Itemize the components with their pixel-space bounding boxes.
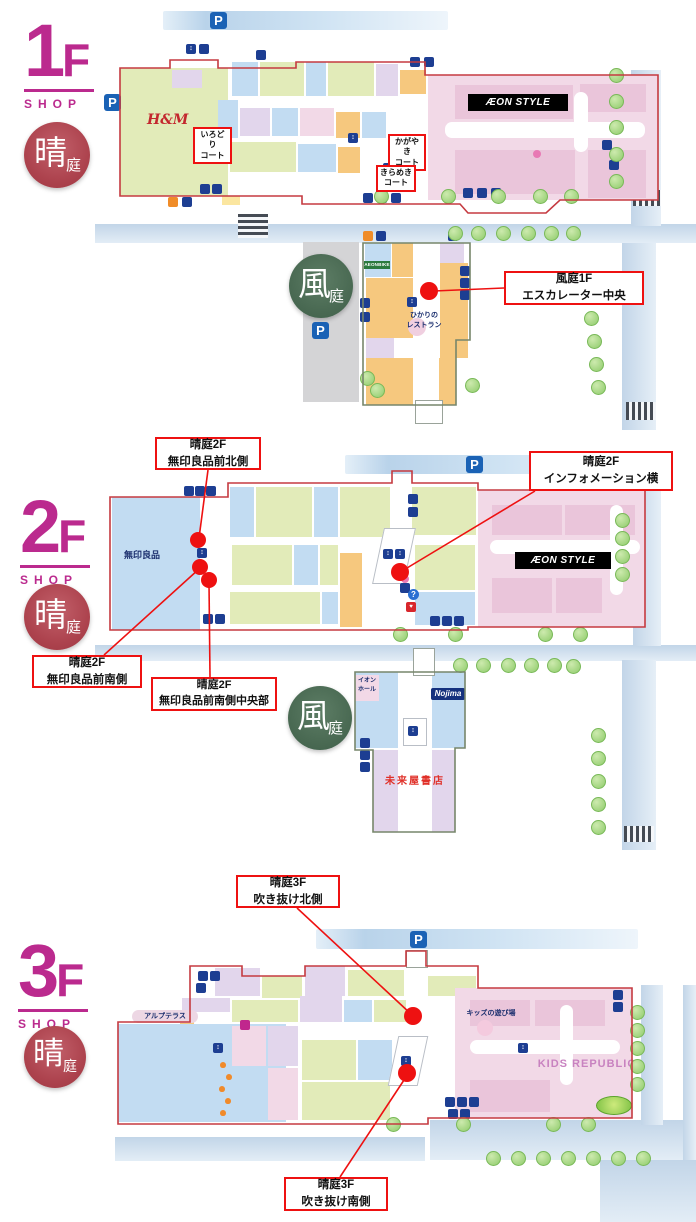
tree-icon [471, 226, 486, 241]
tree-icon [591, 380, 606, 395]
facility-icon [215, 614, 225, 624]
store-block [298, 144, 336, 172]
kids-playground-label: キッズの遊び場 [452, 1008, 530, 1018]
tree-icon [591, 820, 606, 835]
kids-playground-spot [477, 1020, 493, 1036]
tree-icon [448, 627, 463, 642]
service-icon [533, 150, 541, 158]
tree-icon [584, 311, 599, 326]
facility-icon [360, 750, 370, 760]
store-block [305, 966, 345, 996]
tree-icon [476, 658, 491, 673]
toilet-icon [360, 312, 370, 322]
road [115, 1137, 425, 1161]
store-block-muji [112, 497, 200, 630]
alp-terrace-label: アルプテラス [132, 1010, 198, 1023]
tree-icon [566, 659, 581, 674]
tree-icon [573, 627, 588, 642]
store-block [415, 545, 475, 590]
tree-icon [547, 658, 562, 673]
tree-icon [591, 751, 606, 766]
tree-icon [561, 1151, 576, 1166]
court-label-irodori: いろどり コート [193, 127, 232, 164]
floor-suffix: F [56, 954, 84, 1006]
toilet-icon [613, 990, 623, 1000]
niwa-kanji: 庭 [328, 721, 343, 736]
store-block [556, 578, 602, 613]
store-block [362, 112, 386, 138]
crosswalk [238, 214, 268, 238]
tree-icon [591, 774, 606, 789]
facility-icon [457, 1097, 467, 1107]
tree-icon [630, 1077, 645, 1092]
parking-icon: P [410, 931, 427, 948]
service-icon [401, 575, 409, 583]
store-block [338, 147, 360, 173]
escalator-icon [408, 726, 418, 736]
facility-icon [184, 486, 194, 496]
tree-icon [630, 1059, 645, 1074]
tree-icon [609, 174, 624, 189]
facility-icon [613, 1002, 623, 1012]
marker-dot-2f-muji-south-center [201, 572, 217, 588]
leader-line [209, 583, 210, 677]
parking-strip [316, 929, 638, 949]
store-block [256, 487, 312, 537]
facility-icon [460, 290, 470, 300]
tree-icon [496, 226, 511, 241]
parking-icon: P [210, 12, 227, 29]
facility-icon [408, 494, 418, 504]
tree-icon [536, 1151, 551, 1166]
floor-suffix: F [58, 510, 86, 562]
parking-icon: P [104, 94, 121, 111]
shop-caption: SHOP [24, 97, 94, 111]
hareniwa-kanji: 晴 [34, 136, 67, 169]
tree-icon [501, 658, 516, 673]
store-block [294, 545, 318, 585]
corridor [470, 1040, 620, 1054]
facility-icon [360, 298, 370, 308]
nojima-sign: Nojima [431, 688, 465, 700]
tree-icon [544, 226, 559, 241]
hareniwa-kanji: 晴 [33, 1039, 64, 1070]
callout-2f-muji-south-center: 晴庭2F 無印良品前南側中央部 [151, 677, 277, 711]
store-block [492, 505, 562, 535]
store-block [230, 487, 254, 537]
callout-3f-atrium-north: 晴庭3F 吹き抜け北側 [236, 875, 340, 908]
escalator-icon [518, 1043, 528, 1053]
escalator-icon [383, 549, 393, 559]
tree-icon [546, 1117, 561, 1132]
tree-icon [591, 797, 606, 812]
escalator-icon [401, 1056, 411, 1066]
store-block [232, 1000, 298, 1022]
hareniwa-badge: 晴 庭 [24, 584, 90, 650]
callout-kazeniwa-1f-escalator-center: 風庭1F エスカレーター中央 [504, 271, 644, 305]
store-block [268, 1026, 298, 1066]
facility-icon [442, 616, 452, 626]
tree-icon [538, 627, 553, 642]
parking-icon: P [312, 322, 329, 339]
tree-icon [521, 226, 536, 241]
facility-icon [196, 983, 206, 993]
road [622, 660, 656, 850]
road [95, 645, 696, 661]
store-block [232, 545, 292, 585]
floor-2-label: 2F SHOP [20, 494, 90, 587]
store-block [300, 108, 334, 136]
tree-icon [393, 627, 408, 642]
store-block-aeonbike [365, 243, 391, 277]
store-block [400, 70, 426, 94]
kids-republic-sign: KIDS REPUBLIC [535, 1058, 639, 1070]
callout-3f-atrium-south: 晴庭3F 吹き抜け南側 [284, 1177, 388, 1211]
aeon-style-sign: ÆON STYLE [468, 94, 568, 111]
facility-icon [469, 1097, 479, 1107]
callout-2f-information-side: 晴庭2F インフォメーション横 [529, 451, 673, 491]
store-block [366, 358, 456, 405]
tree-icon [486, 1151, 501, 1166]
tree-icon [581, 1117, 596, 1132]
store-block [172, 70, 202, 88]
store-block [240, 108, 270, 136]
muji-label: 無印良品 [124, 548, 188, 561]
tree-icon [636, 1151, 651, 1166]
store-block [470, 1080, 550, 1112]
tree-icon [587, 334, 602, 349]
road [641, 985, 663, 1125]
paw-print-icon [225, 1098, 231, 1104]
store-block [366, 338, 394, 358]
tree-icon [630, 1005, 645, 1020]
store-block [232, 1026, 266, 1066]
paw-print-icon [226, 1074, 232, 1080]
store-block [314, 487, 338, 537]
escalator-icon [186, 44, 196, 54]
aeon-hall-label: イオン ホール [355, 677, 379, 695]
facility-icon [376, 231, 386, 241]
tree-icon [609, 94, 624, 109]
hareniwa-badge: 晴 庭 [24, 1026, 86, 1088]
tree-icon [456, 1117, 471, 1132]
store-block [260, 62, 304, 96]
store-block [232, 1068, 266, 1120]
escalator-icon [395, 549, 405, 559]
store-block [302, 1082, 390, 1120]
corridor [415, 400, 443, 424]
tree-icon [609, 68, 624, 83]
road [600, 1160, 696, 1222]
facility-icon [424, 57, 434, 67]
facility-icon [168, 197, 178, 207]
tree-icon [630, 1041, 645, 1056]
toilet-icon [203, 614, 213, 624]
tree-icon [589, 357, 604, 372]
facility-icon [198, 971, 208, 981]
escalator-icon [348, 133, 358, 143]
store-block [302, 1040, 356, 1080]
facility-icon [212, 184, 222, 194]
corridor [413, 648, 435, 676]
tree-icon [609, 120, 624, 135]
store-block [374, 1000, 406, 1022]
callout-2f-muji-south: 晴庭2F 無印良品前南側 [32, 655, 142, 688]
tree-icon [511, 1151, 526, 1166]
floor-3-label: 3F SHOP [18, 938, 88, 1031]
tree-icon [448, 226, 463, 241]
store-block [232, 62, 258, 96]
tree-icon [609, 147, 624, 162]
floor-number: 1 [24, 9, 62, 92]
store-block [230, 142, 296, 172]
floor-suffix: F [62, 34, 90, 86]
skids-garden-logo [596, 1096, 632, 1115]
mall-floor-maps: P 1F SHOP 晴 庭 ÆON STYLE H&M P いろどり コート か… [0, 0, 696, 1222]
tree-icon [615, 513, 630, 528]
crosswalk [624, 826, 654, 842]
store-block [455, 150, 575, 194]
toilet-icon [360, 762, 370, 772]
tree-icon [611, 1151, 626, 1166]
facility-icon [363, 193, 373, 203]
store-block [358, 1040, 392, 1080]
store-block [440, 243, 464, 263]
corridor [560, 1005, 573, 1085]
floor-number: 2 [20, 485, 58, 568]
store-block [306, 62, 326, 96]
store-block [344, 1000, 372, 1022]
store-block [222, 196, 240, 205]
shop-icon [240, 1020, 250, 1030]
facility-icon [460, 266, 470, 276]
corridor [574, 92, 588, 152]
tree-icon [566, 226, 581, 241]
facility-icon [460, 278, 470, 288]
tree-icon [615, 549, 630, 564]
tree-icon [370, 383, 385, 398]
tree-icon [441, 189, 456, 204]
paw-print-icon [220, 1110, 226, 1116]
road [95, 224, 696, 243]
store-block [328, 62, 374, 96]
tree-icon [524, 658, 539, 673]
floor-1-label: 1F SHOP [24, 18, 94, 111]
facility-icon [206, 486, 216, 496]
store-block [230, 592, 320, 624]
tree-icon [453, 658, 468, 673]
facility-icon [408, 507, 418, 517]
toilet-icon [448, 1109, 458, 1119]
court-label-kirameki: きらめき コート [376, 165, 416, 192]
store-block [300, 996, 342, 1022]
aeonbike-sign: AEONBIKE [364, 261, 390, 269]
store-block [320, 545, 338, 585]
tree-icon [615, 531, 630, 546]
store-block [322, 592, 338, 624]
parking-icon: P [466, 456, 483, 473]
store-block [412, 487, 476, 535]
paw-print-icon [219, 1086, 225, 1092]
facility-icon [430, 616, 440, 626]
niwa-kanji: 庭 [66, 158, 81, 173]
restaurant-label: ひかりの レストラン [398, 310, 450, 330]
kaze-kanji: 風 [298, 267, 331, 300]
store-block [215, 968, 260, 996]
facility-icon [363, 231, 373, 241]
escalator-icon [407, 297, 417, 307]
niwa-kanji: 庭 [66, 620, 81, 635]
corridor [398, 672, 432, 832]
tree-icon [630, 1023, 645, 1038]
aed-icon [406, 602, 416, 612]
niwa-kanji: 庭 [329, 289, 344, 304]
crosswalk [626, 402, 656, 420]
aeon-style-sign: ÆON STYLE [515, 552, 611, 569]
facility-icon [445, 1097, 455, 1107]
tree-icon [491, 189, 506, 204]
hm-sign: H&M [147, 112, 188, 128]
niwa-kanji: 庭 [63, 1060, 77, 1074]
parking-strip [163, 11, 448, 30]
store-block [340, 553, 362, 627]
question-icon: ? [408, 589, 419, 600]
facility-icon [410, 57, 420, 67]
corridor [406, 950, 428, 968]
floor-number: 3 [18, 929, 56, 1012]
store-block [262, 976, 302, 998]
escalator-icon [213, 1043, 223, 1053]
store-block [492, 578, 552, 613]
tree-icon [564, 189, 579, 204]
facility-icon [195, 486, 205, 496]
tree-icon [386, 1117, 401, 1132]
paw-print-icon [220, 1062, 226, 1068]
callout-2f-muji-north: 晴庭2F 無印良品前北側 [155, 437, 261, 470]
hareniwa-kanji: 晴 [34, 598, 67, 631]
kazeniwa-badge: 風 庭 [289, 254, 353, 318]
kaze-kanji: 風 [297, 699, 330, 732]
miraiya-bookstore-sign: 未来屋書店 [375, 772, 455, 787]
store-block [272, 108, 298, 136]
tree-icon [586, 1151, 601, 1166]
tree-icon [615, 567, 630, 582]
leader-line [199, 470, 208, 538]
tree-icon [591, 728, 606, 743]
facility-icon [182, 197, 192, 207]
hareniwa-badge: 晴 庭 [24, 122, 90, 188]
toilet-icon [210, 971, 220, 981]
facility-icon [360, 738, 370, 748]
facility-icon [199, 44, 209, 54]
marker-dot-3f-atrium-north [404, 1007, 422, 1025]
store-block [348, 970, 404, 996]
kazeniwa-badge: 風 庭 [288, 686, 352, 750]
tree-icon [465, 378, 480, 393]
store-block [268, 1068, 298, 1120]
facility-icon [454, 616, 464, 626]
escalator-icon [197, 548, 207, 558]
toilet-icon [256, 50, 266, 60]
tree-icon [533, 189, 548, 204]
facility-icon [477, 188, 487, 198]
store-block [376, 64, 398, 96]
facility-icon [200, 184, 210, 194]
toilet-icon [391, 193, 401, 203]
facility-icon [463, 188, 473, 198]
